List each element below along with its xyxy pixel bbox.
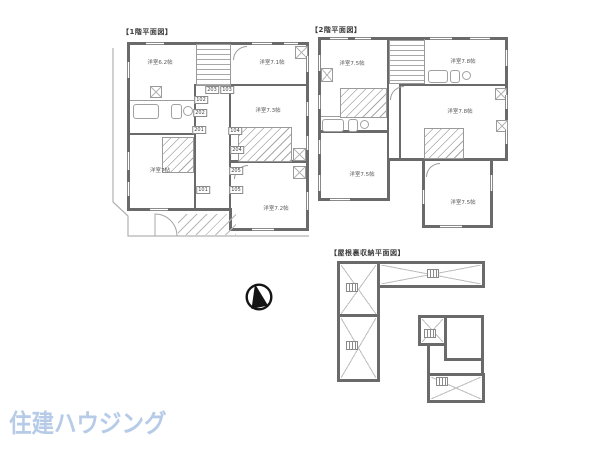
- window: [318, 95, 321, 109]
- window: [252, 228, 274, 231]
- window: [284, 42, 298, 45]
- bathtub-fixture: [428, 70, 448, 83]
- window: [430, 37, 452, 40]
- wall: [399, 84, 506, 86]
- window: [127, 62, 130, 78]
- unit-number-plate: 104: [228, 127, 242, 135]
- room-label: 洋室7.8帖: [447, 107, 472, 115]
- storage-box: [337, 261, 380, 318]
- wall: [481, 358, 484, 376]
- bath-unit-fixture: [321, 68, 333, 82]
- unit-number-plate: 201: [192, 126, 206, 134]
- stairs: [389, 40, 425, 84]
- unit-number-plate: 203: [205, 86, 219, 94]
- wall: [387, 158, 390, 201]
- floorplan-canvas: 【1階平面図】 【2階平面図】 【屋根裏収納平面図】: [0, 0, 600, 450]
- window: [146, 42, 164, 45]
- window: [306, 136, 309, 150]
- wall: [318, 198, 390, 201]
- storage-box: [444, 315, 484, 361]
- sink-fixture: [360, 120, 369, 129]
- sink-fixture: [462, 71, 471, 80]
- window: [330, 37, 348, 40]
- company-logo: 住建ハウジング: [9, 404, 167, 440]
- window: [318, 175, 321, 191]
- room-label: 洋室7.8帖: [450, 57, 475, 65]
- window: [150, 208, 168, 211]
- bathtub-fixture: [322, 119, 344, 132]
- floor1-title: 【1階平面図】: [122, 27, 172, 37]
- toilet-fixture: [348, 119, 358, 132]
- toilet-fixture: [450, 70, 460, 83]
- north-compass-icon: [244, 281, 274, 313]
- window: [490, 175, 493, 191]
- stairs: [424, 128, 464, 159]
- ladder-icon: [346, 341, 358, 350]
- wall: [427, 343, 430, 376]
- unit-number-plate: 202: [193, 109, 207, 117]
- window: [330, 198, 350, 201]
- unit-number-plate: 105: [229, 186, 243, 194]
- window: [440, 225, 462, 228]
- floor2-title: 【2階平面図】: [311, 25, 361, 35]
- wall: [490, 161, 493, 228]
- driveway-hatch: [178, 214, 236, 235]
- window: [505, 130, 508, 144]
- ladder-icon: [346, 283, 358, 292]
- window: [470, 37, 490, 40]
- room-label: 洋室7.5帖: [349, 170, 374, 178]
- stairs: [340, 88, 387, 118]
- attic-title: 【屋根裏収納平面図】: [330, 248, 405, 258]
- window: [355, 37, 371, 40]
- door-swing-arc: [426, 163, 440, 177]
- room-label: 洋室7.5帖: [450, 198, 475, 206]
- window: [505, 95, 508, 109]
- window: [252, 42, 272, 45]
- unit-number-plate: 101: [196, 186, 210, 194]
- unit-number-plate: 102: [194, 96, 208, 104]
- storage-box: [337, 314, 380, 382]
- unit-number-plate: 205: [229, 167, 243, 175]
- window: [127, 152, 130, 170]
- unit-number-plate: 204: [230, 146, 244, 154]
- window: [318, 55, 321, 71]
- unit-number-plate: 103: [220, 86, 234, 94]
- window: [306, 56, 309, 72]
- door-swing-arc: [390, 86, 404, 100]
- window: [306, 102, 309, 116]
- room-label: 洋室7.5帖: [339, 59, 364, 67]
- window: [318, 140, 321, 154]
- ladder-icon: [427, 269, 439, 278]
- gate-swing-arc: [155, 214, 177, 236]
- boundary-line: [113, 48, 309, 236]
- window: [306, 192, 309, 210]
- window: [127, 182, 130, 196]
- window: [422, 190, 425, 204]
- ladder-icon: [436, 377, 448, 386]
- ladder-icon: [424, 329, 436, 338]
- window: [505, 50, 508, 66]
